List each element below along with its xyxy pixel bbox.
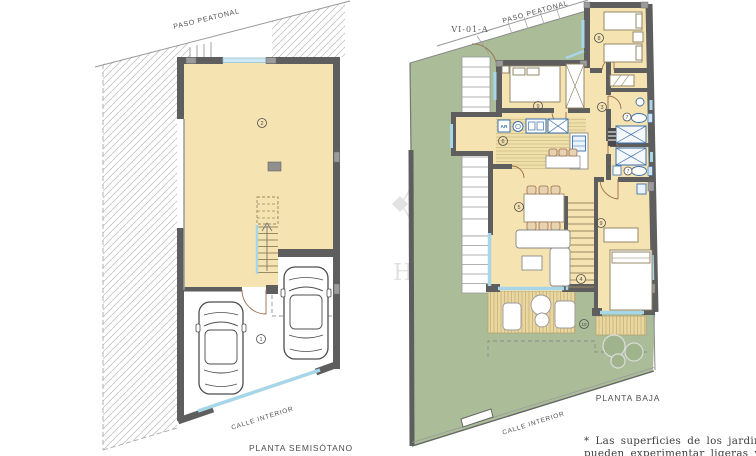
svg-text:2: 2 [260, 121, 263, 127]
room-number-bath-2: 7 [624, 167, 632, 175]
floorplan-canvas: HOMES [0, 0, 756, 456]
kitchen-sink [526, 119, 546, 133]
car-left [196, 302, 246, 394]
room-number-garage: 1 [257, 335, 266, 344]
footnote: * Las superficies de los jardines pueden… [584, 435, 756, 456]
svg-text:7: 7 [626, 115, 629, 121]
terrace-deck-bedroom [596, 316, 646, 335]
room-number-bath-1: 7 [623, 113, 631, 121]
footnote-line-2: pueden experimentar ligeras va- [584, 448, 756, 456]
column-block [268, 162, 281, 171]
dining-set [524, 186, 564, 230]
bedroom-left-furniture [502, 64, 584, 108]
island-stools [549, 149, 577, 156]
exterior-steps [462, 57, 490, 293]
basement-window [223, 58, 266, 63]
title-planta-semisotano: PLANTA SEMISÓTANO [249, 443, 353, 453]
floorplan-sheet: HOMES [0, 0, 756, 456]
toilet-icon [632, 167, 647, 176]
door-arc-garage [242, 290, 266, 314]
plan-baja: AR [410, 0, 660, 447]
car-right [281, 267, 331, 359]
unit-code-label: VI-01-A [450, 25, 488, 34]
label-calle-interior-left: CALLE INTERIOR [231, 406, 295, 432]
entry-steps [190, 42, 211, 59]
svg-text:7: 7 [627, 169, 630, 175]
svg-text:9: 9 [599, 221, 602, 227]
plan-semisotano: 2 1 PASO PEATONAL CALLE INTERIOR PLANTA … [95, 1, 353, 453]
svg-text:9: 9 [536, 104, 539, 110]
service-shaft [608, 128, 616, 146]
toilet-icon [632, 114, 647, 123]
svg-text:1: 1 [259, 337, 262, 343]
kitchen-ar-tag: AR [501, 124, 508, 130]
washer-icon [513, 122, 523, 132]
wardrobe [610, 75, 634, 86]
svg-text:5: 5 [517, 205, 520, 211]
room-number-stairs: 4 [577, 275, 586, 284]
wardrobe [566, 64, 584, 108]
kitchen-island [546, 156, 580, 168]
svg-text:3: 3 [600, 105, 603, 111]
footnote-line-1: * Las superficies de los jardines [584, 435, 756, 447]
utility-box-icon [637, 184, 646, 194]
svg-text:8: 8 [597, 36, 600, 42]
svg-text:6: 6 [501, 139, 504, 145]
svg-text:4: 4 [579, 277, 582, 283]
sink-icon [613, 166, 621, 175]
title-planta-baja: PLANTA BAJA [596, 393, 660, 403]
label-paso-peatonal-left: PASO PEATONAL [173, 8, 241, 31]
svg-text:10: 10 [581, 322, 587, 327]
watermark-gem-icon [392, 196, 408, 212]
